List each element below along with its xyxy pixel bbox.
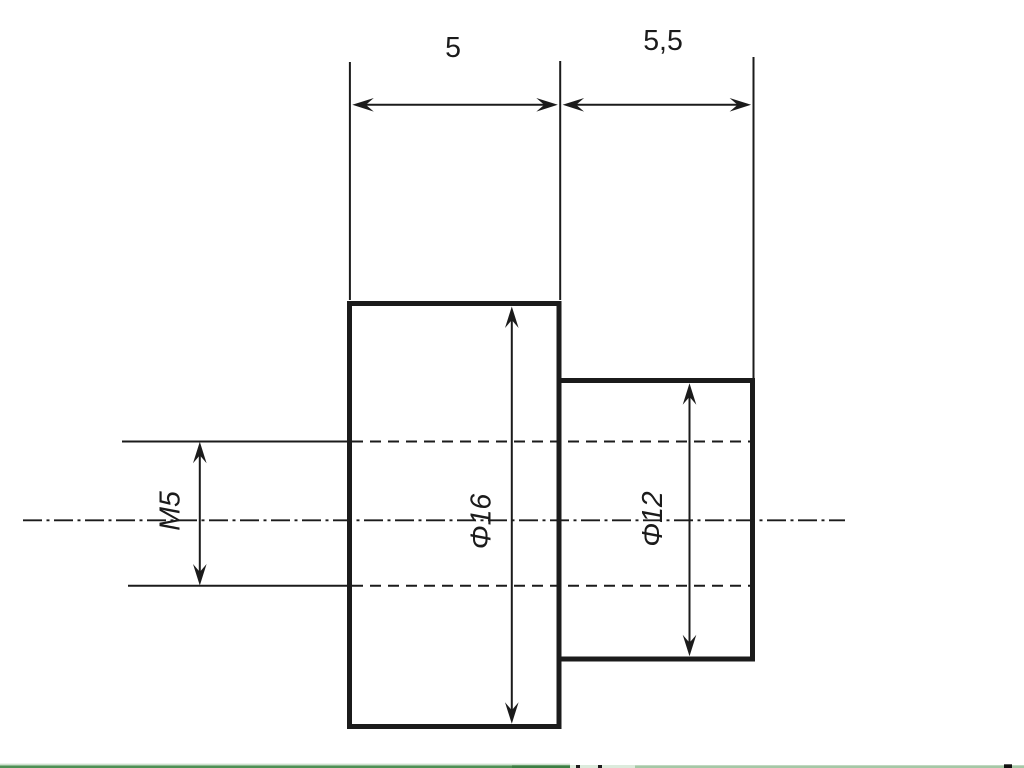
svg-text:5,5: 5,5 <box>643 25 683 57</box>
svg-text:M5: M5 <box>155 491 187 531</box>
svg-text:5: 5 <box>445 32 461 64</box>
svg-text:Φ16: Φ16 <box>466 494 498 550</box>
svg-text:Φ12: Φ12 <box>637 491 669 547</box>
